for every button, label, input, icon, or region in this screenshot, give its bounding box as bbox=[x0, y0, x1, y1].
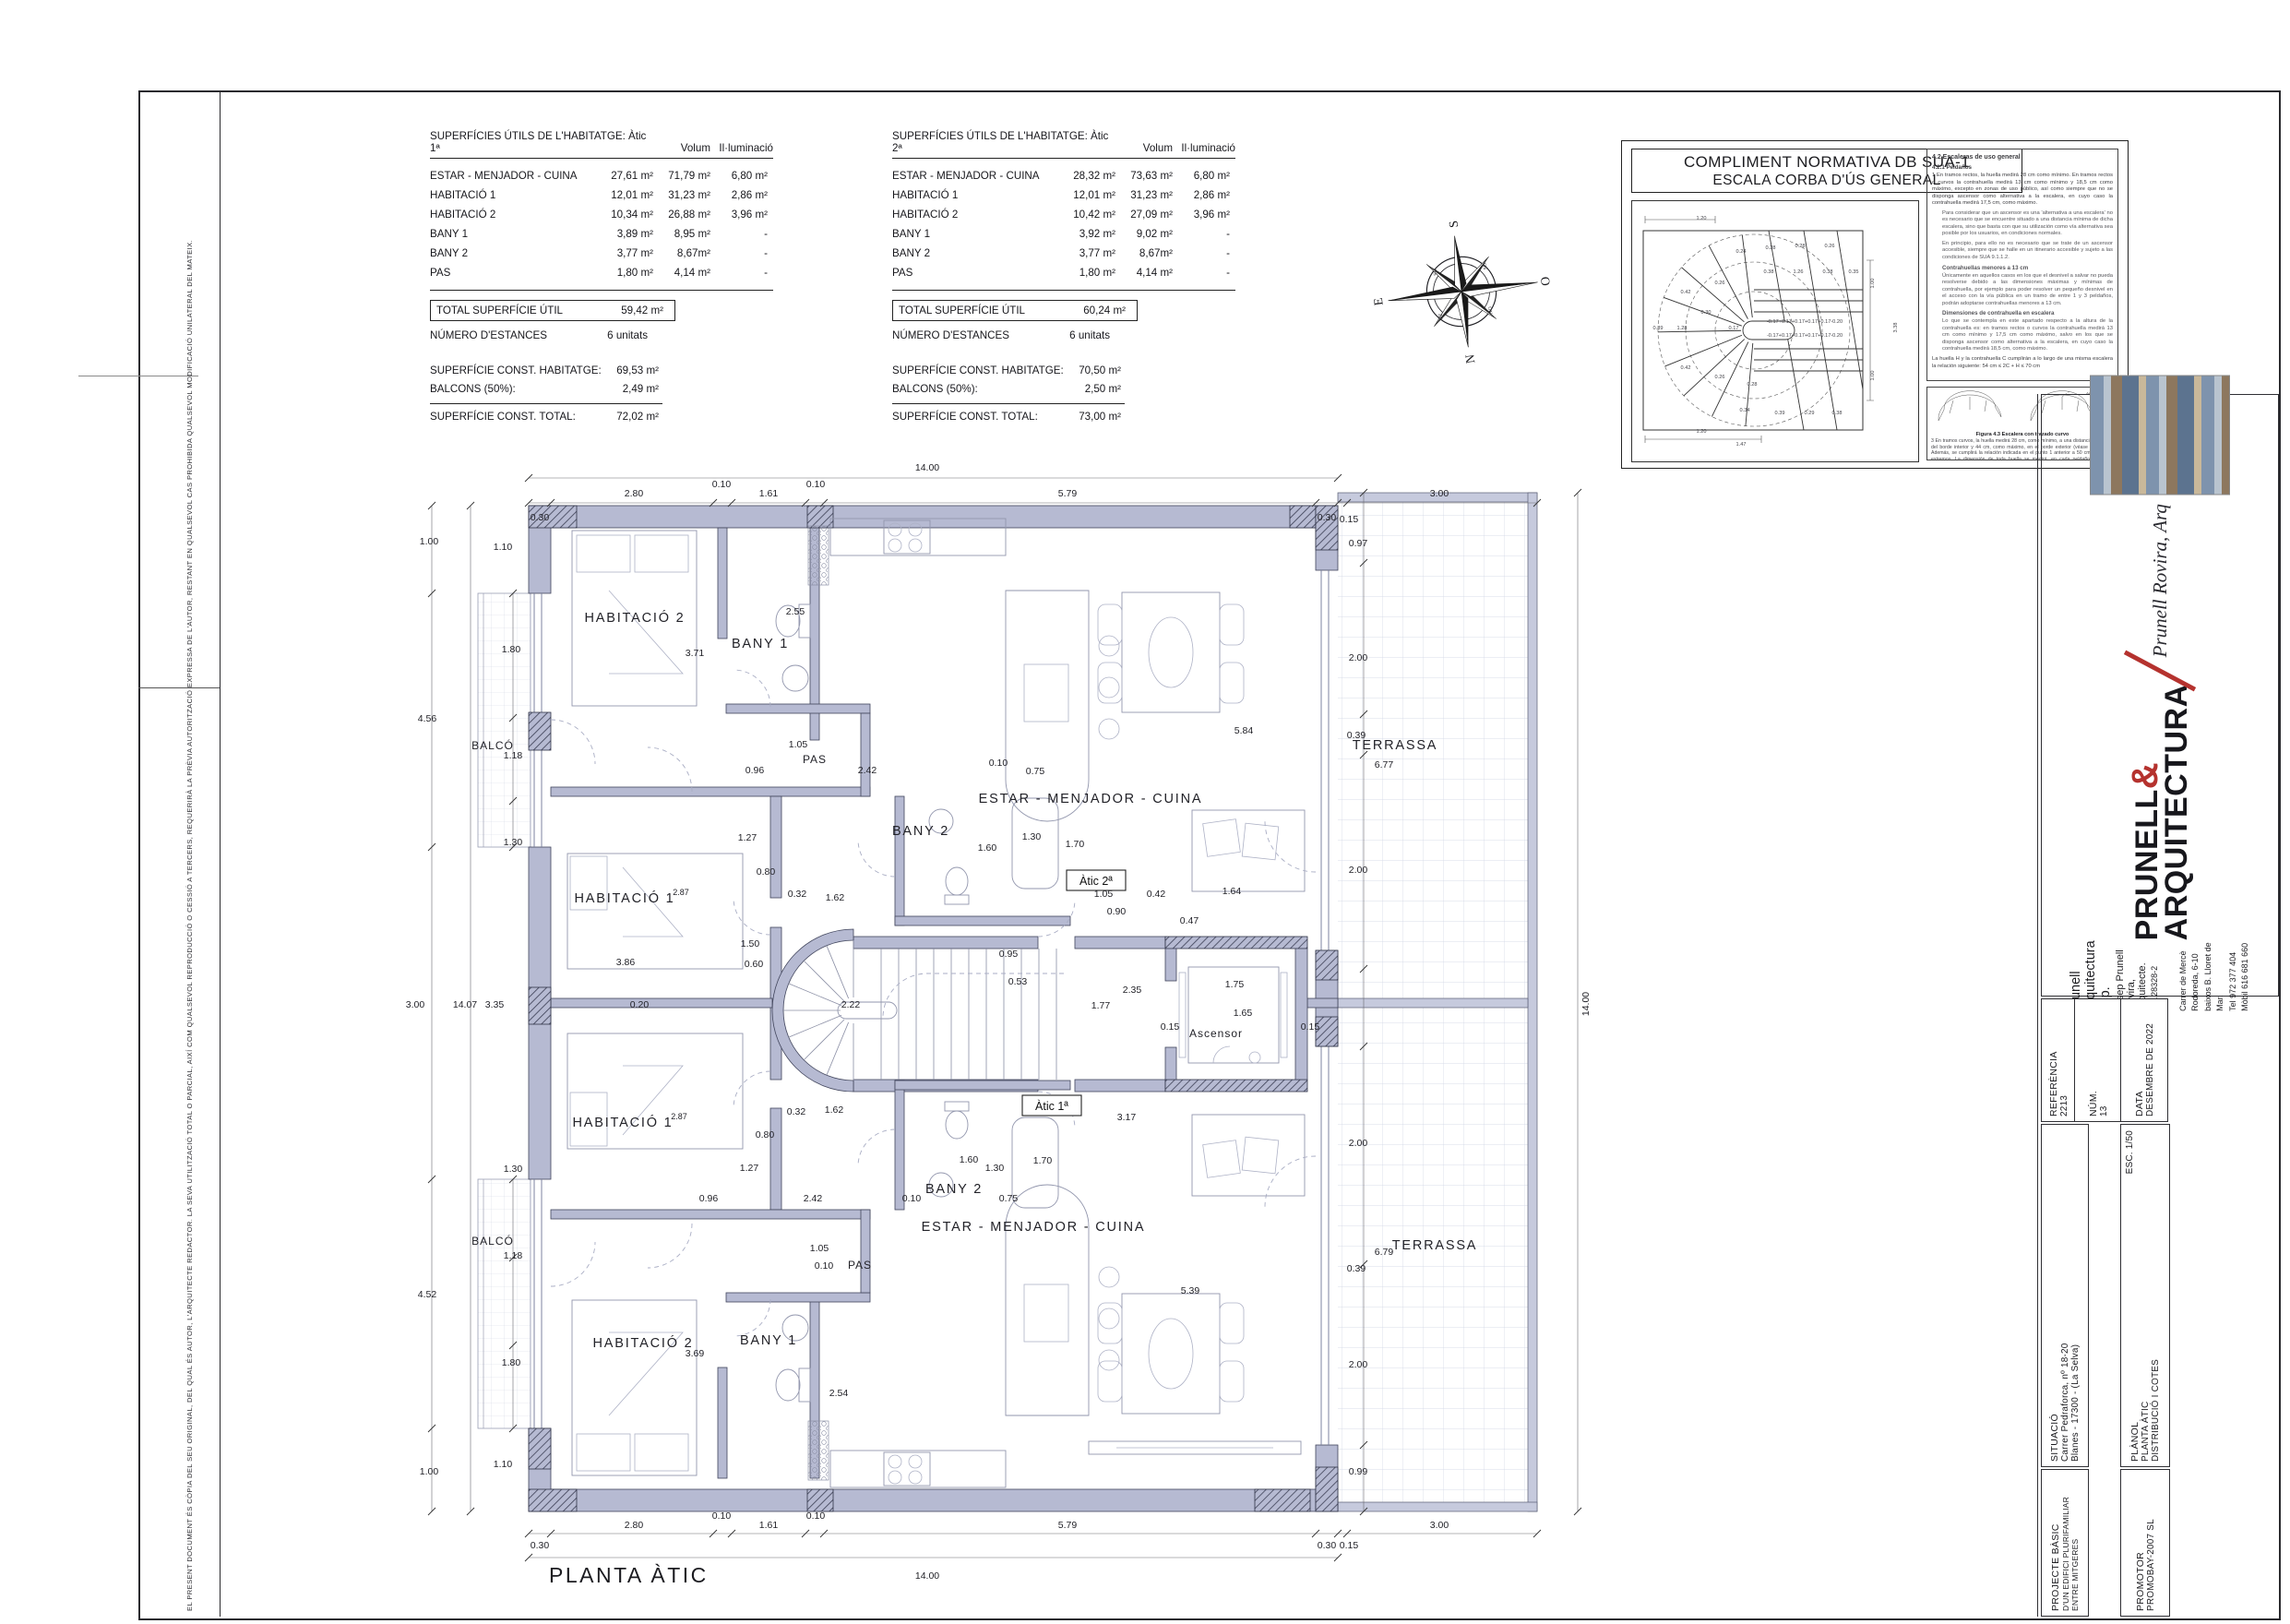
const-row: SUPERFÍCIE CONST. HABITATGE:69,53 m² bbox=[430, 362, 773, 380]
floor-plan: 14.000.302.800.101.610.105.790.300.153.0… bbox=[388, 434, 1679, 1624]
table-header: SUPERFÍCIES ÚTILS DE L'HABITATGE: Àtic 2… bbox=[892, 130, 1235, 159]
stair-dim-label: 1.20 bbox=[1697, 429, 1707, 435]
room-label: BALCÓ bbox=[471, 738, 514, 752]
curved-stair bbox=[772, 929, 1064, 1092]
dim-label: 4.52 bbox=[418, 1289, 437, 1300]
table-rows: ESTAR - MENJADOR - CUINA28,32 m²73,63 m²… bbox=[892, 159, 1235, 282]
dim-label: 3.00 bbox=[406, 999, 425, 1010]
dim-label: 1.30 bbox=[985, 1163, 1005, 1174]
scale: ESC. 1/50 bbox=[2125, 1130, 2135, 1174]
room-label: HABITACIÓ 1 bbox=[575, 890, 675, 906]
dim-label: 0.96 bbox=[745, 765, 765, 776]
compass-rose: E O S N SE SO NO NE bbox=[1364, 196, 1559, 388]
stair-dim-label: 0.38 bbox=[1832, 411, 1843, 416]
stair-dim-label: 0.28 bbox=[1766, 245, 1776, 251]
dim-label: 1.65 bbox=[1234, 1008, 1253, 1019]
dim-label: 5.84 bbox=[1234, 725, 1254, 736]
field-planol: PLÀNOL PLANTA ÀTIC DISTRIBUCIÓ I COTES E… bbox=[2120, 1124, 2170, 1467]
dim-label: 0.80 bbox=[757, 866, 776, 878]
room-label: BALCÓ bbox=[471, 1234, 514, 1248]
const-rows: SUPERFÍCIE CONST. HABITATGE:69,53 m²BALC… bbox=[430, 362, 773, 399]
field-projecte: PROJECTE BÀSIC D'UN EDIFICI PLURIFAMILIA… bbox=[2041, 1469, 2089, 1617]
dim-label: 2.80 bbox=[625, 1520, 644, 1531]
table-row: PAS1,80 m²4,14 m²- bbox=[892, 263, 1235, 282]
unit-tag-label: Àtic 1ª bbox=[1035, 1099, 1068, 1113]
const-total-row: SUPERFÍCIE CONST. TOTAL: 73,00 m² bbox=[892, 404, 1235, 423]
stair-dim-label: -0.17+0.17+0.17+0.17+0.17-0.20 bbox=[1767, 319, 1843, 325]
dim-label: 1.60 bbox=[978, 842, 997, 854]
architect-logo-card: prunell arquitectura scp. Josep Prunell … bbox=[2041, 394, 2279, 997]
stair-dim-label: 0.28 bbox=[1747, 382, 1758, 388]
dim-label: 3.17 bbox=[1117, 1112, 1137, 1123]
dim-label: 0.47 bbox=[1180, 915, 1199, 926]
stair-dim-label: 0.42 bbox=[1681, 365, 1691, 371]
table-row: HABITACIÓ 112,01 m²31,23 m²2,86 m² bbox=[892, 185, 1235, 205]
dim-label: 0.42 bbox=[1147, 889, 1166, 900]
furniture-atic2 bbox=[567, 519, 1305, 969]
logo: PRUNELL& ARQUITECTURA Prunell Rovira, Ar… bbox=[2090, 375, 2230, 940]
dim-label: 0.30 bbox=[531, 512, 550, 523]
stair-dim-label: 0.29 bbox=[1805, 411, 1815, 416]
dim-label: 0.97 bbox=[1349, 538, 1368, 549]
stair-dim-label: 1.00 bbox=[1870, 279, 1876, 289]
logo-script: Prunell Rovira, Arq bbox=[2149, 504, 2172, 657]
dim-label: 1.30 bbox=[504, 1164, 523, 1175]
sheet-inner-border bbox=[220, 90, 221, 1617]
room-label: ESTAR - MENJADOR - CUINA bbox=[922, 1220, 1146, 1235]
structural-columns bbox=[529, 506, 1338, 1511]
stair-dim-label: 0.26 bbox=[1715, 375, 1725, 380]
room-label: TERRASSA bbox=[1353, 738, 1438, 753]
dim-label: 14.07 bbox=[453, 999, 477, 1010]
room-label: ESTAR - MENJADOR - CUINA bbox=[979, 792, 1203, 806]
dim-label: 5.79 bbox=[1058, 488, 1078, 499]
room-label: Ascensor bbox=[1189, 1027, 1243, 1040]
dim-label: 14.00 bbox=[915, 462, 939, 473]
dim-label: 1.10 bbox=[494, 542, 513, 553]
table-row: HABITACIÓ 112,01 m²31,23 m²2,86 m² bbox=[430, 185, 773, 205]
dim-label: 6.77 bbox=[1375, 759, 1394, 770]
stair-dim-label: 1.26 bbox=[1794, 269, 1804, 275]
const-row: BALCONS (50%):2,50 m² bbox=[892, 380, 1235, 399]
room-label: PAS bbox=[803, 753, 827, 766]
dim-label: 3.71 bbox=[686, 648, 705, 659]
dim-label: 1.80 bbox=[502, 644, 521, 655]
room-label: BANY 2 bbox=[925, 1182, 983, 1197]
dim-label: 14.00 bbox=[1580, 992, 1592, 1016]
compass-no: NE bbox=[1438, 312, 1445, 320]
logo-photo bbox=[2090, 375, 2230, 495]
const-rows: SUPERFÍCIE CONST. HABITATGE:70,50 m²BALC… bbox=[892, 362, 1235, 399]
stair-dim-label: 1.28 bbox=[1677, 326, 1688, 331]
phone: Tel 972 377 404 Mòbil 616 681 660 bbox=[2227, 940, 2252, 1011]
table-row: PAS1,80 m²4,14 m²- bbox=[430, 263, 773, 282]
room-label: 2.87 bbox=[671, 1112, 687, 1121]
const-row: SUPERFÍCIE CONST. HABITATGE:70,50 m² bbox=[892, 362, 1235, 380]
table-rows: ESTAR - MENJADOR - CUINA27,61 m²71,79 m²… bbox=[430, 159, 773, 282]
dim-label: 1.80 bbox=[502, 1357, 521, 1368]
dim-label: 1.70 bbox=[1033, 1155, 1053, 1166]
stair-dim-label: 0.17 bbox=[1729, 326, 1739, 331]
room-label: TERRASSA bbox=[1392, 1238, 1478, 1253]
const-row: BALCONS (50%):2,49 m² bbox=[430, 380, 773, 399]
exterior-walls bbox=[529, 506, 1338, 1511]
field-data: DATA DESEMBRE DE 2022 bbox=[2120, 998, 2168, 1122]
col-illuminacio: Il·luminació bbox=[1173, 142, 1235, 154]
surface-table-atic2: SUPERFÍCIES ÚTILS DE L'HABITATGE: Àtic 2… bbox=[892, 130, 1235, 423]
dim-label: 3.00 bbox=[1430, 488, 1449, 499]
compass-n: E bbox=[1371, 297, 1386, 306]
dim-label: 1.30 bbox=[1022, 831, 1042, 842]
dim-label: 2.00 bbox=[1349, 865, 1368, 876]
stair-dim-label: 3.38 bbox=[1893, 323, 1899, 333]
dim-label: 2.00 bbox=[1349, 1359, 1368, 1370]
dim-label: 1.27 bbox=[740, 1163, 759, 1174]
balcony-top bbox=[478, 593, 531, 847]
dim-label: 2.22 bbox=[841, 999, 861, 1010]
dim-label: 1.05 bbox=[810, 1243, 829, 1254]
estances-row: NÚMERO D'ESTANCES 6 unitats bbox=[430, 321, 773, 341]
dim-label: 0.10 bbox=[806, 479, 826, 490]
stair-dim-label: 1.20 bbox=[1697, 216, 1707, 221]
dim-label: 2.35 bbox=[1123, 985, 1142, 996]
norm-text-column: 4.2 Escaleras de uso general 4.2.1 Pelda… bbox=[1926, 149, 2118, 381]
room-label: HABITACIÓ 2 bbox=[593, 1335, 694, 1351]
dim-label: 0.10 bbox=[712, 1511, 732, 1522]
dim-label: 0.39 bbox=[1347, 1263, 1366, 1274]
dim-label: 1.50 bbox=[741, 938, 760, 949]
dim-label: 2.42 bbox=[804, 1193, 823, 1204]
const-total-row: SUPERFÍCIE CONST. TOTAL: 72,02 m² bbox=[430, 404, 773, 423]
dim-label: 3.35 bbox=[485, 999, 505, 1010]
dim-label: 0.10 bbox=[806, 1511, 826, 1522]
compass-o: N bbox=[1462, 353, 1477, 364]
dim-label: 0.32 bbox=[787, 1106, 806, 1117]
col-volum: Volum bbox=[1115, 142, 1173, 154]
stair-dim-label: 0.38 bbox=[1764, 269, 1774, 275]
dim-label: 2.00 bbox=[1349, 652, 1368, 663]
stair-dim-label: 0.26 bbox=[1715, 281, 1725, 286]
dim-label: 6.79 bbox=[1375, 1247, 1394, 1258]
furniture-atic1 bbox=[567, 1033, 1305, 1487]
dim-label: 1.18 bbox=[504, 1250, 523, 1261]
table-title: SUPERFÍCIES ÚTILS DE L'HABITATGE: Àtic 1… bbox=[430, 130, 653, 154]
dim-label: 5.79 bbox=[1058, 1520, 1078, 1531]
dim-label: 0.30 bbox=[1318, 512, 1337, 523]
table-row: ESTAR - MENJADOR - CUINA28,32 m²73,63 m²… bbox=[892, 166, 1235, 185]
dim-label: 0.20 bbox=[630, 999, 650, 1010]
dim-label: 2.42 bbox=[858, 765, 877, 776]
stair-dim-label: 0.39 bbox=[1653, 326, 1664, 331]
stair-dim-label: 1.47 bbox=[1736, 442, 1747, 448]
dim-label: 0.10 bbox=[815, 1260, 834, 1272]
dim-label: 1.30 bbox=[504, 837, 523, 848]
dim-label: 0.15 bbox=[1301, 1021, 1320, 1033]
room-label: BANY 1 bbox=[732, 637, 789, 651]
dim-label: 1.62 bbox=[826, 892, 845, 903]
total-box: TOTAL SUPERFÍCIE ÚTIL 60,24 m² bbox=[892, 300, 1138, 321]
dim-label: 0.15 bbox=[1161, 1021, 1180, 1033]
table-row: BANY 23,77 m²8,67m²- bbox=[892, 244, 1235, 263]
dim-label: 3.86 bbox=[616, 957, 636, 968]
dim-label: 0.75 bbox=[1026, 766, 1045, 777]
stair-dim-label: 0.24 bbox=[1736, 249, 1747, 255]
field-num: NÚM. 13 bbox=[2074, 998, 2122, 1122]
dim-label: 1.27 bbox=[738, 832, 757, 843]
compass-so: NO bbox=[1488, 306, 1495, 315]
dim-label: 14.00 bbox=[915, 1570, 939, 1582]
copyright-disclaimer: EL PRESENT DOCUMENT ÉS CÒPIA DEL SEU ORI… bbox=[185, 172, 194, 1611]
dim-label: 1.62 bbox=[825, 1105, 844, 1116]
stair-dim-label: 0.30 bbox=[1701, 310, 1712, 316]
total-box: TOTAL SUPERFÍCIE ÚTIL 59,42 m² bbox=[430, 300, 675, 321]
col-volum: Volum bbox=[653, 142, 710, 154]
dim-label: 0.75 bbox=[999, 1193, 1019, 1204]
table-row: BANY 13,89 m²8,95 m²- bbox=[430, 224, 773, 244]
col-illuminacio: Il·luminació bbox=[710, 142, 773, 154]
titleblock-border bbox=[2037, 394, 2038, 1617]
table-row: BANY 13,92 m²9,02 m²- bbox=[892, 224, 1235, 244]
room-label: PAS bbox=[848, 1259, 872, 1272]
stair-dim-label: 0.26 bbox=[1825, 244, 1835, 249]
curved-stair-diagram: 1.200.240.280.280.260.381.260.380.351.00… bbox=[1631, 200, 1919, 462]
stair-dim-label: 1.00 bbox=[1870, 371, 1876, 381]
compass-cardinal-points bbox=[1381, 227, 1545, 357]
dim-label: 4.56 bbox=[418, 713, 437, 724]
table-header: SUPERFÍCIES ÚTILS DE L'HABITATGE: Àtic 1… bbox=[430, 130, 773, 159]
stair-dim-label: 0.34 bbox=[1740, 408, 1750, 413]
stair-dim-label: 0.35 bbox=[1849, 269, 1859, 275]
dim-label: 0.15 bbox=[1340, 514, 1359, 525]
dim-label: 1.10 bbox=[494, 1459, 513, 1470]
fold-mark-2 bbox=[138, 687, 220, 688]
plan-title: PLANTA ÀTIC bbox=[549, 1563, 709, 1587]
dim-label: 1.60 bbox=[960, 1154, 979, 1165]
dim-label: 1.77 bbox=[1091, 1000, 1111, 1011]
dim-label: 2.80 bbox=[625, 488, 644, 499]
dim-label: 2.54 bbox=[829, 1388, 849, 1399]
room-label: BANY 2 bbox=[892, 824, 949, 839]
dim-label: 0.10 bbox=[712, 479, 732, 490]
dim-label: 1.70 bbox=[1066, 839, 1085, 850]
stair-dim-label: 0.38 bbox=[1823, 269, 1833, 275]
field-referencia: REFERÈNCIA 2213 bbox=[2041, 998, 2076, 1122]
dim-label: 0.15 bbox=[1340, 1540, 1359, 1551]
field-promotor: PROMOTOR PROMOBAY-2007 SL bbox=[2120, 1469, 2170, 1617]
dim-label: 1.05 bbox=[789, 739, 808, 750]
dim-label: 0.80 bbox=[756, 1129, 775, 1140]
dim-label: 3.00 bbox=[1430, 1520, 1449, 1531]
dim-label: 0.99 bbox=[1349, 1466, 1368, 1477]
compass-e: S bbox=[1446, 220, 1461, 228]
room-label: HABITACIÓ 2 bbox=[585, 610, 686, 626]
terrace-top bbox=[1338, 493, 1537, 1511]
dim-label: 0.95 bbox=[999, 949, 1019, 960]
field-situacio: SITUACIÓ Carrer Pedraforca, nº 18-20 Bla… bbox=[2041, 1124, 2089, 1467]
dim-label: 1.64 bbox=[1223, 886, 1242, 897]
dim-label: 0.53 bbox=[1008, 976, 1028, 987]
dim-label: 1.61 bbox=[759, 488, 779, 499]
table-title: SUPERFÍCIES ÚTILS DE L'HABITATGE: Àtic 2… bbox=[892, 130, 1115, 154]
surface-table-atic1: SUPERFÍCIES ÚTILS DE L'HABITATGE: Àtic 1… bbox=[430, 130, 773, 423]
table-row: BANY 23,77 m²8,67m²- bbox=[430, 244, 773, 263]
fold-mark bbox=[78, 376, 198, 376]
dim-label: 0.30 bbox=[1318, 1540, 1337, 1551]
stair-dim-label: -0.17+0.17+0.17+0.17+0.17-0.20 bbox=[1767, 333, 1843, 339]
balcony-bottom bbox=[478, 1179, 531, 1428]
dim-label: 0.10 bbox=[902, 1193, 922, 1204]
stair-dim-label: 0.39 bbox=[1775, 411, 1785, 416]
compass-s: O bbox=[1538, 276, 1553, 287]
dim-label: 0.32 bbox=[788, 889, 807, 900]
dim-label: 2.00 bbox=[1349, 1138, 1368, 1149]
dim-label: 0.96 bbox=[699, 1193, 719, 1204]
dim-label: 1.00 bbox=[420, 536, 439, 547]
unit-tag-label: Àtic 2ª bbox=[1079, 874, 1113, 888]
dim-label: 5.39 bbox=[1181, 1285, 1200, 1296]
dim-label: 0.60 bbox=[745, 959, 764, 970]
table-row: HABITACIÓ 210,34 m²26,88 m²3,96 m² bbox=[430, 205, 773, 224]
dim-label: 1.75 bbox=[1225, 979, 1245, 990]
table-row: ESTAR - MENJADOR - CUINA27,61 m²71,79 m²… bbox=[430, 166, 773, 185]
dim-label: 1.00 bbox=[420, 1466, 439, 1477]
room-label: HABITACIÓ 1 bbox=[573, 1115, 674, 1130]
stair-dim-label: 0.28 bbox=[1795, 244, 1806, 249]
dim-label: 0.10 bbox=[989, 758, 1008, 769]
dim-label: 0.90 bbox=[1107, 906, 1127, 917]
dim-label: 0.30 bbox=[531, 1540, 550, 1551]
estances-row: NÚMERO D'ESTANCES 6 unitats bbox=[892, 321, 1235, 341]
address: Carrer de Mercè Rodoreda, 6-10 baixos B.… bbox=[2177, 940, 2227, 1011]
compass-se: SO bbox=[1483, 263, 1489, 270]
stair-dim-label: 0.42 bbox=[1681, 290, 1691, 295]
dim-label: 2.55 bbox=[786, 606, 805, 617]
room-label: BANY 1 bbox=[740, 1333, 797, 1348]
dim-label: 1.61 bbox=[759, 1520, 779, 1531]
room-label: 2.87 bbox=[673, 888, 689, 897]
table-row: HABITACIÓ 210,42 m²27,09 m²3,96 m² bbox=[892, 205, 1235, 224]
